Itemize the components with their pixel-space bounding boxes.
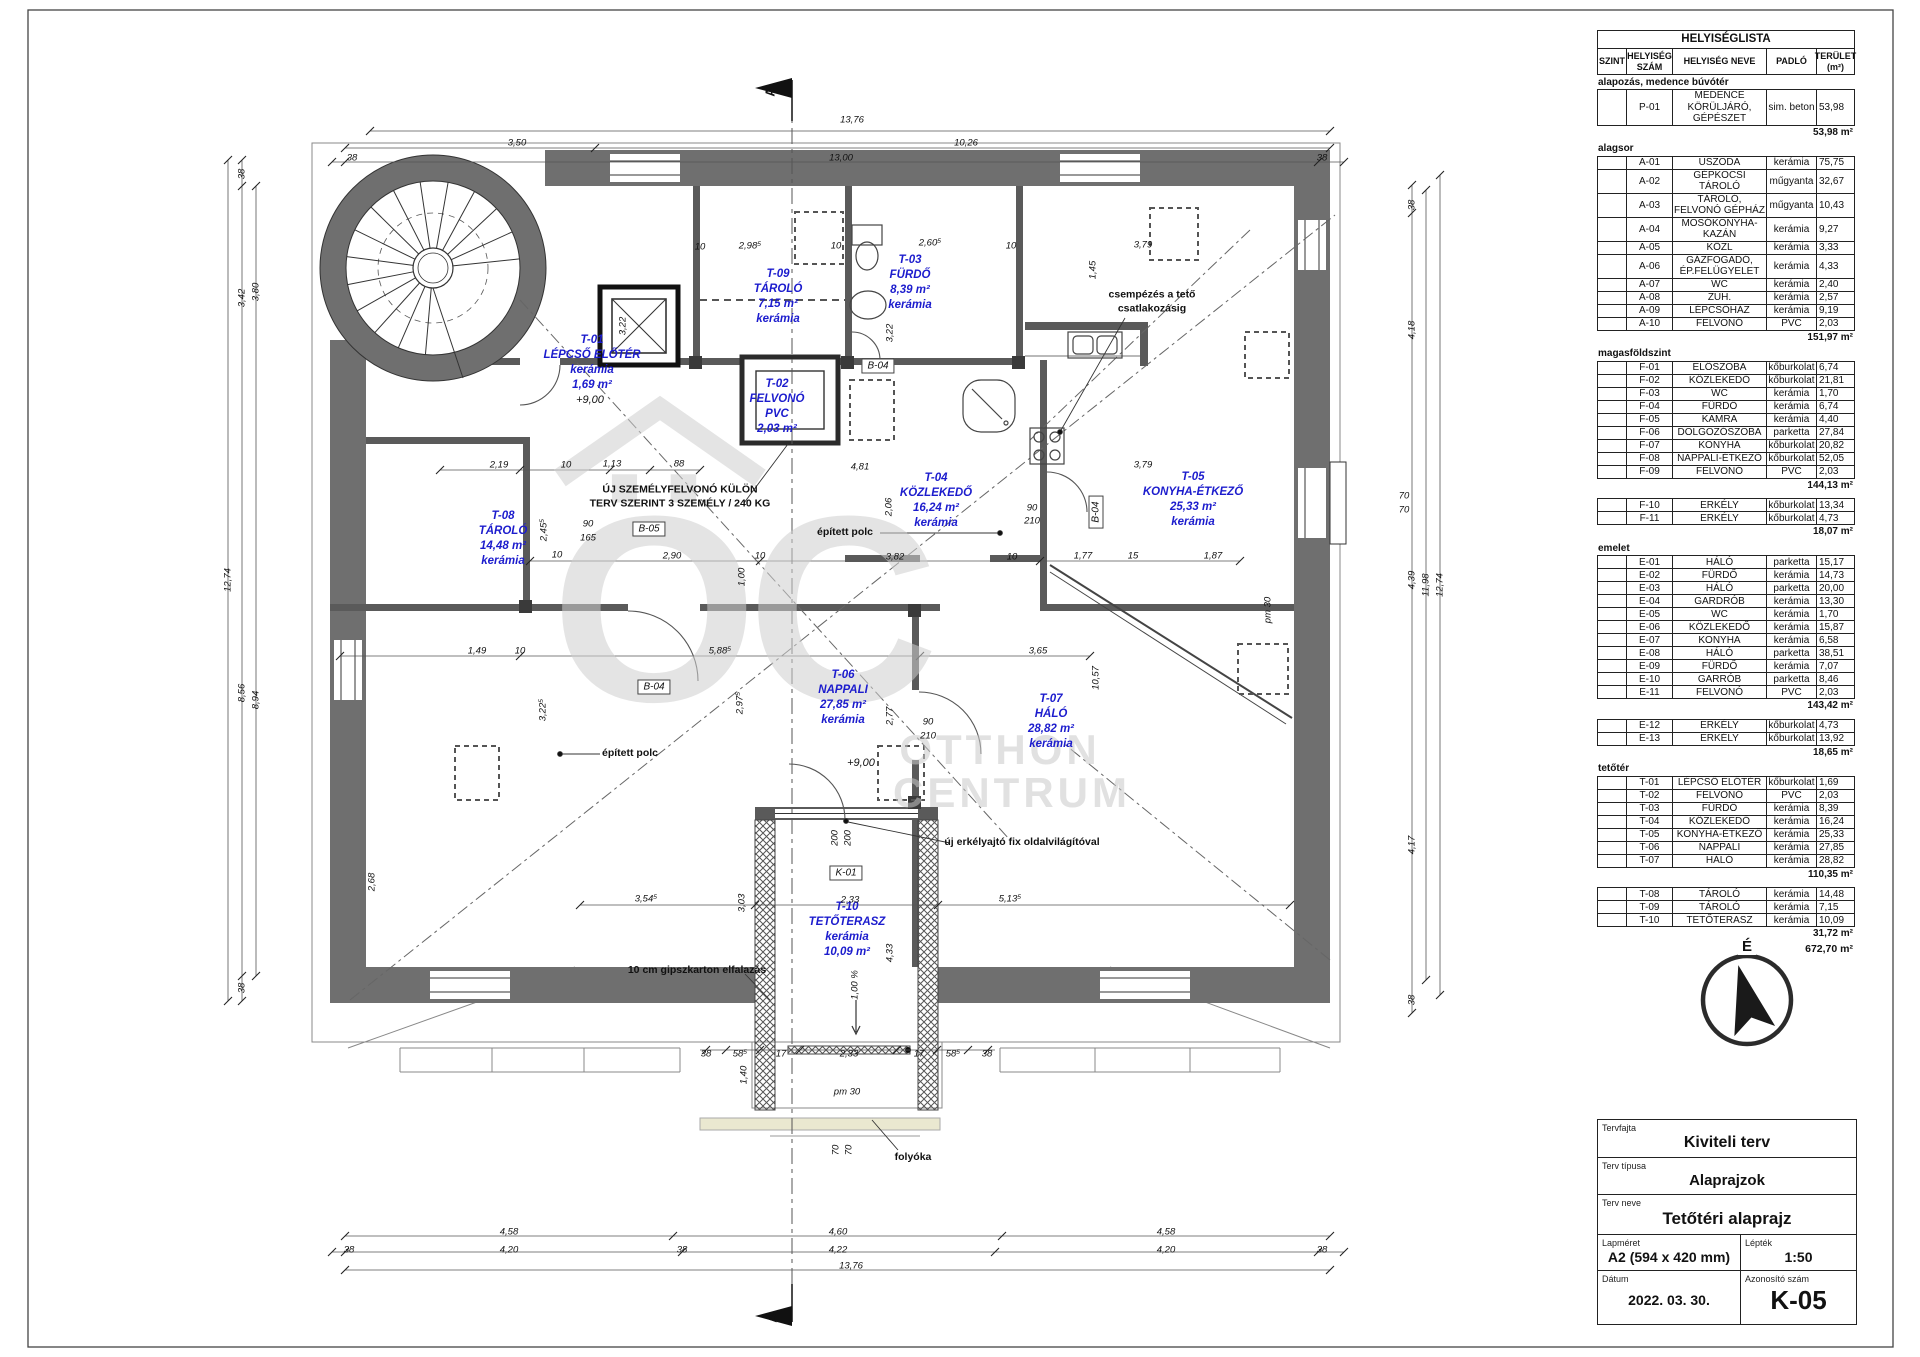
- reference-box: B-04: [637, 680, 670, 695]
- section-label: magasföldszint: [1597, 346, 1855, 361]
- table-row: A-06GÁZFOGADÓ, ÉP.FELÜGYELETkerámia4,33: [1598, 254, 1854, 278]
- table-row: F-02KÖZLEKEDŐkőburkolat21,81: [1598, 374, 1854, 387]
- annotation: csempézés a tető csatlakozásig: [1109, 288, 1196, 315]
- table-row: F-11ERKÉLYkőburkolat4,73: [1598, 511, 1854, 524]
- dimension-label: 3,42: [237, 289, 248, 308]
- dimension-label: 10: [515, 646, 526, 657]
- section-subtotal: 18,65 m²: [1597, 746, 1855, 762]
- dimension-label: 10,57: [1091, 666, 1102, 690]
- section-rows: P-01MEDENCE KÖRÜLJÁRÓ, GÉPÉSZETsim. beto…: [1597, 89, 1855, 126]
- table-row: T-04KÖZLEKEDŐkerámia16,24: [1598, 815, 1854, 828]
- section-subtotal: 143,42 m²: [1597, 699, 1855, 715]
- dimension-label: 1,00 %: [850, 970, 861, 1000]
- dimension-label: 4,58: [500, 1227, 519, 1238]
- dimension-label: 4,81: [851, 462, 870, 473]
- datum-value: 2022. 03. 30.: [1598, 1284, 1740, 1313]
- room-label: T-05KONYHA-ÉTKEZŐ25,33 m²kerámia: [1143, 470, 1243, 530]
- dimension-label: 3,22⁵: [538, 699, 549, 721]
- table-row: E-07KONYHAkerámia6,58: [1598, 633, 1854, 646]
- dimension-label: 38: [237, 169, 248, 180]
- dimension-label: 10: [831, 241, 842, 252]
- dimension-label: 1,87: [1204, 551, 1223, 562]
- table-row: F-10ERKÉLYkőburkolat13,34: [1598, 499, 1854, 511]
- room-list-header: SZINTHELYISÉG SZÁMHELYISÉG NEVEPADLÓTERÜ…: [1597, 48, 1855, 75]
- table-row: F-07KONYHAkőburkolat20,82: [1598, 439, 1854, 452]
- dimension-label: 58⁵: [946, 1049, 961, 1060]
- reference-box: B-04: [1089, 495, 1104, 528]
- dimension-label: 38: [701, 1049, 712, 1060]
- table-row: F-05KAMRAkerámia4,40: [1598, 413, 1854, 426]
- dimension-label: 210: [920, 731, 936, 742]
- table-row: F-06DOLGOZÓSZOBAparketta27,84: [1598, 426, 1854, 439]
- dimension-label: 3,03: [737, 894, 748, 913]
- table-row: E-04GARDRÓBkerámia13,30: [1598, 594, 1854, 607]
- north-label: É: [1738, 938, 1756, 955]
- table-row: E-01HÁLÓparketta15,17: [1598, 556, 1854, 568]
- dimension-label: 2,33: [841, 895, 860, 906]
- table-row: F-08NAPPALI-ÉTKEZŐkőburkolat52,05: [1598, 452, 1854, 465]
- room-label: T-01LÉPCSŐ ELŐTÉRkerámia1,69 m²: [543, 333, 640, 393]
- leptek-value: 1:50: [1741, 1248, 1856, 1270]
- dimension-label: 3,22: [618, 317, 629, 336]
- table-row: E-10GARRÓBparketta8,46: [1598, 672, 1854, 685]
- section-rows: F-01ELŐSZOBAkőburkolat6,74F-02KÖZLEKEDŐk…: [1597, 361, 1855, 479]
- room-label: T-08TÁROLÓ14,48 m²kerámia: [479, 509, 528, 569]
- dimension-label: 10,26: [954, 138, 978, 149]
- terv-tipusa-label: Terv típusa: [1598, 1158, 1856, 1171]
- dimension-label: 12,74: [223, 568, 234, 592]
- dimension-label: 10: [755, 551, 766, 562]
- table-row: E-09FÜRDŐkerámia7,07: [1598, 659, 1854, 672]
- dimension-label: 4,18: [1407, 321, 1418, 340]
- tervfajta-label: Tervfajta: [1598, 1120, 1856, 1133]
- table-row: T-02FELVONÓPVC2,03: [1598, 789, 1854, 802]
- table-row: T-07HÁLÓkerámia28,82: [1598, 854, 1854, 867]
- terv-tipusa-value: Alaprajzok: [1598, 1171, 1856, 1194]
- level-mark: +9,00: [847, 757, 875, 769]
- dimension-label: 4,22: [829, 1245, 848, 1256]
- dimension-label: 2,90: [663, 551, 682, 562]
- annotation: épített polc: [817, 526, 873, 540]
- section-label: tetőtér: [1597, 761, 1855, 776]
- dimension-label: 1,00: [737, 568, 748, 587]
- table-row: F-04FÜRDŐkerámia6,74: [1598, 400, 1854, 413]
- table-row: E-12ERKÉLYkőburkolat4,73: [1598, 720, 1854, 732]
- section-letter-top: A: [763, 87, 778, 96]
- dimension-label: 2,60⁵: [919, 238, 941, 249]
- dimension-label: 4,20: [500, 1245, 519, 1256]
- table-row: T-03FÜRDŐkerámia8,39: [1598, 802, 1854, 815]
- table-row: A-04MOSÓKONYHA-KAZÁNkerámia9,27: [1598, 217, 1854, 241]
- table-row: A-02GÉPKOCSI TÁROLÓműgyanta32,67: [1598, 169, 1854, 193]
- table-row: T-10TETŐTERASZkerámia10,09: [1598, 913, 1854, 926]
- dimension-label: 3,50: [508, 138, 527, 149]
- room-label: T-07HÁLÓ28,82 m²kerámia: [1028, 692, 1074, 752]
- table-row: E-11FELVONÓPVC2,03: [1598, 685, 1854, 698]
- level-mark: +9,00: [576, 394, 604, 406]
- dimension-label: 90: [1027, 503, 1038, 514]
- room-label: T-09TÁROLÓ7,15 m²kerámia: [754, 267, 803, 327]
- dimension-label: 13,76: [840, 115, 864, 126]
- table-row: T-05KONYHA-ÉTKEZŐkerámia25,33: [1598, 828, 1854, 841]
- table-row: E-06KÖZLEKEDŐkerámia15,87: [1598, 620, 1854, 633]
- dimension-label: 3,65: [1029, 646, 1048, 657]
- dimension-label: 2,45⁵: [539, 519, 550, 541]
- section-subtotal: 110,35 m²: [1597, 868, 1855, 884]
- dimension-label: 13,76: [839, 1261, 863, 1272]
- title-block-row-date-id: Dátum 2022. 03. 30. Azonosító szám K-05: [1598, 1270, 1856, 1324]
- dimension-label: 3,54⁵: [635, 894, 657, 905]
- section-rows: E-01HÁLÓparketta15,17E-02FÜRDŐkerámia14,…: [1597, 555, 1855, 699]
- section-subtotal: 151,97 m²: [1597, 331, 1855, 347]
- dimension-label: 17: [776, 1049, 787, 1060]
- dimension-label: 165: [580, 533, 596, 544]
- dimension-label: 2,19: [490, 460, 509, 471]
- dimension-label: pm 30: [834, 1087, 860, 1098]
- dimension-label: 38: [1317, 1245, 1328, 1256]
- dimension-label: 38: [237, 983, 248, 994]
- dimension-label: 4,20: [1157, 1245, 1176, 1256]
- dimension-label: 2,98⁵: [739, 241, 761, 252]
- table-row: E-03HÁLÓparketta20,00: [1598, 581, 1854, 594]
- dimension-label: 38: [1407, 995, 1418, 1006]
- section-rows: E-12ERKÉLYkőburkolat4,73E-13ERKÉLYkőburk…: [1597, 719, 1855, 746]
- section-label: alapozás, medence búvótér: [1597, 75, 1855, 90]
- dimension-label: 5,13⁵: [999, 894, 1021, 905]
- section-subtotal: 144,13 m²: [1597, 479, 1855, 495]
- annotation: új erkélyajtó fix oldalvilágítóval: [944, 836, 1099, 850]
- dimension-label: 4,58: [1157, 1227, 1176, 1238]
- section-rows: T-01LÉPCSŐ ELŐTÉRkőburkolat1,69T-02FELVO…: [1597, 776, 1855, 868]
- lapmeret-value: A2 (594 x 420 mm): [1598, 1248, 1740, 1270]
- annotation: folyóka: [895, 1151, 932, 1165]
- dimension-label: 210: [1024, 516, 1040, 527]
- dimension-label: 2,68: [367, 873, 378, 892]
- section-letter-bottom: A: [765, 1313, 780, 1322]
- dimension-label: 2,06: [884, 498, 895, 517]
- title-block: Tervfajta Kiviteli terv Terv típusa Alap…: [1597, 1119, 1857, 1325]
- dimension-label: 70: [844, 1145, 855, 1156]
- annotation: épített polc: [602, 747, 658, 761]
- table-row: A-08ZUH.kerámia2,57: [1598, 291, 1854, 304]
- dimension-label: 8,56: [237, 684, 248, 703]
- dimension-label: 38: [677, 1245, 688, 1256]
- tervfajta-value: Kiviteli terv: [1598, 1133, 1856, 1157]
- table-row: T-06NAPPALIkerámia27,85: [1598, 841, 1854, 854]
- table-row: F-01ELŐSZOBAkőburkolat6,74: [1598, 362, 1854, 374]
- dimension-label: 4,17: [1407, 836, 1418, 855]
- dimension-label: 70: [1399, 491, 1410, 502]
- dimension-label: 10: [552, 550, 563, 561]
- table-row: E-13ERKÉLYkőburkolat13,92: [1598, 732, 1854, 745]
- dimension-label: 38: [1317, 153, 1328, 164]
- azonosito-label: Azonosító szám: [1741, 1271, 1856, 1284]
- table-row: T-01LÉPCSŐ ELŐTÉRkőburkolat1,69: [1598, 777, 1854, 789]
- dimension-label: 38: [982, 1049, 993, 1060]
- dimension-label: 38: [1407, 200, 1418, 211]
- drawing-sheet: ÖC OTTHON CENTRUM T-01LÉPCSŐ ELŐTÉRkerám…: [0, 0, 1920, 1357]
- reference-box: B-04: [861, 359, 894, 374]
- room-list-title: HELYISÉGLISTA: [1597, 30, 1855, 49]
- dimension-label: pm 30: [1263, 597, 1274, 623]
- table-row: F-03WCkerámia1,70: [1598, 387, 1854, 400]
- dimension-label: 38: [347, 153, 358, 164]
- table-row: E-02FÜRDŐkerámia14,73: [1598, 568, 1854, 581]
- dimension-label: 3,79: [1134, 460, 1153, 471]
- section-subtotal: 18,07 m²: [1597, 525, 1855, 541]
- dimension-label: 1,45: [1088, 261, 1099, 280]
- azonosito-value: K-05: [1741, 1284, 1856, 1324]
- table-row: A-03TÁROLÓ, FELVONÓ GÉPHÁZműgyanta10,43: [1598, 193, 1854, 217]
- section-rows: T-08TÁROLÓkerámia14,48T-09TÁROLÓkerámia7…: [1597, 887, 1855, 927]
- table-row: E-08HÁLÓparketta38,51: [1598, 646, 1854, 659]
- dimension-label: 5,88⁵: [709, 646, 731, 657]
- table-row: T-08TÁROLÓkerámia14,48: [1598, 888, 1854, 900]
- table-row: T-09TÁROLÓkerámia7,15: [1598, 900, 1854, 913]
- table-row: A-01USZODAkerámia75,75: [1598, 157, 1854, 169]
- dimension-label: 3,82: [886, 552, 905, 563]
- annotation: ÚJ SZEMÉLYFELVONÓ KÜLÖN TERV SZERINT 3 S…: [590, 483, 771, 510]
- dimension-label: 11,98: [1421, 573, 1432, 596]
- dimension-label: 10: [1006, 241, 1017, 252]
- dimension-label: 17: [914, 1049, 925, 1060]
- section-label: alagsor: [1597, 141, 1855, 156]
- dimension-label: 1,77: [1074, 551, 1093, 562]
- dimension-label: 200: [843, 830, 854, 846]
- dimension-label: 38: [344, 1245, 355, 1256]
- dimension-label: 1,49: [468, 646, 487, 657]
- table-row: A-10FELVONÓPVC2,03: [1598, 317, 1854, 330]
- dimension-label: 70: [831, 1145, 842, 1156]
- dimension-label: 58⁵: [733, 1049, 748, 1060]
- room-label: T-10TETŐTERASZkerámia10,09 m²: [809, 900, 886, 960]
- dimension-label: 1,13: [603, 459, 622, 470]
- reference-box: B-05: [632, 522, 665, 537]
- dimension-label: 200: [830, 830, 841, 846]
- dimension-label: 70: [1399, 505, 1410, 516]
- dimension-label: 1,40: [739, 1066, 750, 1085]
- dimension-label: 3,79: [1134, 240, 1153, 251]
- dimension-label: 90: [583, 519, 594, 530]
- north-needle-icon: [1718, 960, 1775, 1036]
- title-block-row-neve: Terv neve Tetőtéri alaprajz: [1598, 1194, 1856, 1234]
- dimension-label: 13,00: [829, 153, 853, 164]
- dimension-label: 88: [674, 459, 685, 470]
- reference-box: K-01: [829, 866, 862, 881]
- dimension-label: 90: [923, 717, 934, 728]
- table-row: F-09FELVONÓPVC2,03: [1598, 465, 1854, 478]
- dimension-label: 2,77: [885, 707, 896, 726]
- dimension-label: 2,97⁵: [735, 692, 746, 714]
- title-block-row-tipus: Terv típusa Alaprajzok: [1598, 1157, 1856, 1194]
- lapmeret-label: Lapméret: [1598, 1235, 1740, 1248]
- annotation: 10 cm gipszkarton elfalazás: [628, 964, 766, 978]
- leptek-label: Lépték: [1741, 1235, 1856, 1248]
- north-arrow: É: [1692, 938, 1802, 1054]
- dimension-label: 10: [695, 242, 706, 253]
- dimension-label: 12,74: [1435, 573, 1446, 597]
- dimension-label: 3,22: [885, 324, 896, 343]
- table-row: A-09LÉPCSŐHÁZkerámia9,19: [1598, 304, 1854, 317]
- table-row: E-05WCkerámia1,70: [1598, 607, 1854, 620]
- room-list-table: HELYISÉGLISTASZINTHELYISÉG SZÁMHELYISÉG …: [1597, 30, 1855, 955]
- terv-neve-label: Terv neve: [1598, 1195, 1856, 1208]
- room-label: T-04KÖZLEKEDŐ16,24 m²kerámia: [900, 471, 972, 531]
- table-row: A-05KÖZLkerámia3,33: [1598, 241, 1854, 254]
- dimension-label: 2,33: [840, 1049, 859, 1060]
- dimension-label: 4,60: [829, 1227, 848, 1238]
- dimension-label: 10: [1007, 552, 1018, 563]
- section-label: emelet: [1597, 541, 1855, 556]
- terv-neve-value: Tetőtéri alaprajz: [1598, 1208, 1856, 1234]
- dimension-label: 4,33: [885, 944, 896, 963]
- section-rows: F-10ERKÉLYkőburkolat13,34F-11ERKÉLYkőbur…: [1597, 498, 1855, 525]
- title-block-row-size-scale: Lapméret A2 (594 x 420 mm) Lépték 1:50: [1598, 1234, 1856, 1270]
- section-subtotal: 53,98 m²: [1597, 126, 1855, 142]
- section-rows: A-01USZODAkerámia75,75A-02GÉPKOCSI TÁROL…: [1597, 156, 1855, 331]
- title-block-row-tervfajta: Tervfajta Kiviteli terv: [1598, 1120, 1856, 1157]
- dimension-label: 8,94: [251, 691, 262, 710]
- table-row: A-07WCkerámia2,40: [1598, 278, 1854, 291]
- dimension-label: 3,80: [251, 283, 262, 302]
- room-label: T-02FELVONÓPVC2,03 m²: [750, 377, 805, 437]
- dimension-label: 15: [1128, 551, 1139, 562]
- dimension-label: 10: [561, 460, 572, 471]
- datum-label: Dátum: [1598, 1271, 1740, 1284]
- dimension-label: 4,39: [1407, 571, 1418, 590]
- table-row: P-01MEDENCE KÖRÜLJÁRÓ, GÉPÉSZETsim. beto…: [1598, 90, 1854, 125]
- room-label: T-06NAPPALI27,85 m²kerámia: [818, 668, 868, 728]
- room-label: T-03FÜRDŐ8,39 m²kerámia: [888, 253, 931, 313]
